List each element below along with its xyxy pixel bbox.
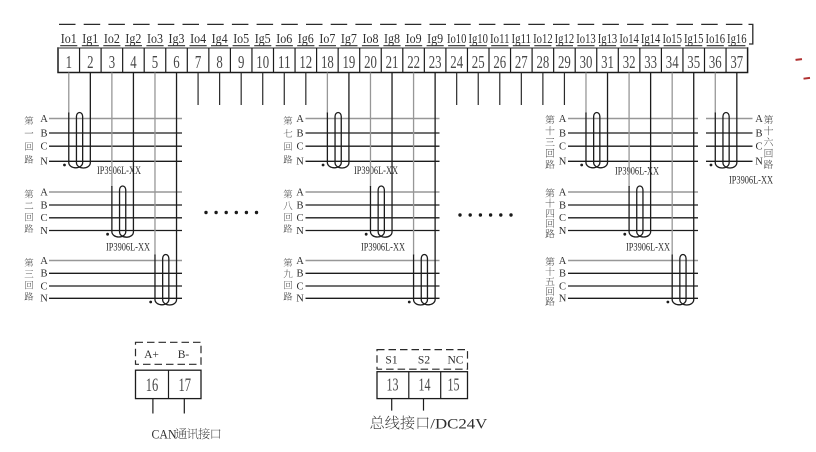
svg-text:34: 34 bbox=[666, 52, 679, 72]
svg-text:N: N bbox=[40, 294, 48, 305]
svg-text:Io3: Io3 bbox=[147, 31, 163, 46]
svg-text:A: A bbox=[40, 256, 48, 267]
svg-text:Ig13: Ig13 bbox=[598, 31, 618, 46]
svg-text:Ig15: Ig15 bbox=[684, 31, 704, 46]
svg-text:26: 26 bbox=[493, 52, 506, 72]
svg-text:Io15: Io15 bbox=[662, 31, 682, 46]
svg-text:Ig2: Ig2 bbox=[125, 31, 141, 46]
svg-text:Ig12: Ig12 bbox=[555, 31, 575, 46]
svg-text:31: 31 bbox=[601, 52, 614, 72]
svg-text:B: B bbox=[40, 269, 47, 280]
svg-text:B-: B- bbox=[178, 349, 190, 361]
svg-text:A: A bbox=[40, 114, 48, 125]
svg-text:1: 1 bbox=[66, 52, 72, 72]
svg-text:N: N bbox=[296, 157, 304, 168]
svg-text:Io13: Io13 bbox=[576, 31, 596, 46]
svg-text:A+: A+ bbox=[144, 349, 159, 361]
svg-text:Io9: Io9 bbox=[406, 31, 422, 46]
svg-text:IP3906L-XX: IP3906L-XX bbox=[615, 166, 659, 178]
svg-text:15: 15 bbox=[448, 375, 460, 395]
svg-text:A: A bbox=[296, 187, 304, 198]
svg-text:B: B bbox=[296, 128, 303, 139]
svg-text:Ig5: Ig5 bbox=[255, 31, 271, 46]
svg-text:IP3906L-XX: IP3906L-XX bbox=[106, 242, 150, 254]
svg-text:Io14: Io14 bbox=[619, 31, 639, 46]
svg-text:N: N bbox=[755, 157, 763, 168]
svg-text:18: 18 bbox=[321, 52, 334, 72]
svg-text:14: 14 bbox=[419, 375, 431, 395]
svg-text:Io7: Io7 bbox=[319, 31, 335, 46]
svg-text:Io6: Io6 bbox=[276, 31, 292, 46]
svg-text:21: 21 bbox=[386, 52, 399, 72]
svg-text:Io11: Io11 bbox=[490, 31, 510, 46]
svg-text:C: C bbox=[296, 213, 303, 224]
svg-text:27: 27 bbox=[515, 52, 528, 72]
svg-text:Io8: Io8 bbox=[363, 31, 379, 46]
svg-text:IP3906L-XX: IP3906L-XX bbox=[361, 242, 405, 254]
svg-text:8: 8 bbox=[216, 52, 223, 72]
svg-text:32: 32 bbox=[623, 52, 636, 72]
svg-text:10: 10 bbox=[256, 52, 269, 72]
svg-text:N: N bbox=[559, 294, 567, 305]
svg-text:C: C bbox=[296, 281, 303, 292]
svg-text:13: 13 bbox=[387, 375, 399, 395]
svg-text:Ig6: Ig6 bbox=[298, 31, 314, 46]
svg-text:C: C bbox=[40, 142, 47, 153]
svg-text:12: 12 bbox=[299, 52, 312, 72]
svg-text:B: B bbox=[559, 128, 566, 139]
svg-text:/DC24V: /DC24V bbox=[430, 416, 488, 432]
svg-text:A: A bbox=[559, 256, 567, 267]
svg-text:35: 35 bbox=[687, 52, 700, 72]
svg-text:30: 30 bbox=[580, 52, 593, 72]
svg-text:B: B bbox=[296, 269, 303, 280]
svg-text:Io4: Io4 bbox=[190, 31, 206, 46]
svg-text:CAN: CAN bbox=[152, 427, 178, 442]
svg-text:19: 19 bbox=[343, 52, 356, 72]
svg-text:B: B bbox=[559, 269, 566, 280]
svg-text:B: B bbox=[559, 200, 566, 211]
svg-text:11: 11 bbox=[278, 52, 291, 72]
svg-text:25: 25 bbox=[472, 52, 485, 72]
svg-text:23: 23 bbox=[429, 52, 442, 72]
svg-text:N: N bbox=[40, 226, 48, 237]
svg-text:20: 20 bbox=[364, 52, 377, 72]
svg-text:17: 17 bbox=[179, 375, 192, 396]
svg-text:B: B bbox=[40, 200, 47, 211]
svg-text:Ig16: Ig16 bbox=[727, 31, 747, 46]
svg-text:C: C bbox=[296, 142, 303, 153]
svg-text:Ig8: Ig8 bbox=[384, 31, 400, 46]
svg-text:Ig10: Ig10 bbox=[468, 31, 488, 46]
svg-text:B: B bbox=[755, 128, 762, 139]
svg-text:3: 3 bbox=[109, 52, 116, 72]
svg-text:C: C bbox=[40, 281, 47, 292]
svg-text:Io1: Io1 bbox=[61, 31, 77, 46]
svg-text:A: A bbox=[559, 114, 567, 125]
svg-text:A: A bbox=[755, 114, 763, 125]
svg-text:22: 22 bbox=[407, 52, 420, 72]
svg-text:IP3906L-XX: IP3906L-XX bbox=[626, 242, 670, 254]
svg-text:Ig1: Ig1 bbox=[82, 31, 98, 46]
svg-text:C: C bbox=[559, 281, 566, 292]
svg-text:A: A bbox=[559, 187, 567, 198]
svg-text:IP3906L-XX: IP3906L-XX bbox=[97, 165, 141, 177]
svg-text:4: 4 bbox=[130, 52, 137, 72]
svg-text:C: C bbox=[559, 142, 566, 153]
svg-text:IP3906L-XX: IP3906L-XX bbox=[729, 175, 773, 187]
svg-text:Io2: Io2 bbox=[104, 31, 120, 46]
svg-text:A: A bbox=[40, 187, 48, 198]
svg-text:28: 28 bbox=[537, 52, 550, 72]
svg-text:Io10: Io10 bbox=[447, 31, 467, 46]
svg-text:37: 37 bbox=[730, 52, 743, 72]
svg-text:7: 7 bbox=[195, 52, 202, 72]
svg-text:9: 9 bbox=[238, 52, 245, 72]
svg-text:Ig11: Ig11 bbox=[512, 31, 532, 46]
svg-text:B: B bbox=[296, 200, 303, 211]
svg-text:S1: S1 bbox=[385, 355, 397, 367]
svg-text:Ig14: Ig14 bbox=[641, 31, 661, 46]
svg-text:NC: NC bbox=[448, 355, 464, 367]
svg-text:Ig7: Ig7 bbox=[341, 31, 357, 46]
svg-text:36: 36 bbox=[709, 52, 722, 72]
svg-text:Io12: Io12 bbox=[533, 31, 553, 46]
svg-text:2: 2 bbox=[87, 52, 93, 72]
svg-text:N: N bbox=[40, 157, 48, 168]
svg-text:Ig9: Ig9 bbox=[427, 31, 443, 46]
svg-text:Ig4: Ig4 bbox=[212, 31, 228, 46]
svg-text:A: A bbox=[296, 256, 304, 267]
svg-text:24: 24 bbox=[450, 52, 463, 72]
svg-text:Io16: Io16 bbox=[706, 31, 726, 46]
svg-text:16: 16 bbox=[146, 375, 159, 396]
svg-text:A: A bbox=[296, 114, 304, 125]
svg-text:C: C bbox=[40, 213, 47, 224]
svg-text:N: N bbox=[296, 226, 304, 237]
svg-text:N: N bbox=[296, 294, 304, 305]
svg-text:29: 29 bbox=[558, 52, 571, 72]
svg-text:Ig3: Ig3 bbox=[169, 31, 185, 46]
svg-text:6: 6 bbox=[173, 52, 180, 72]
svg-text:Io5: Io5 bbox=[233, 31, 249, 46]
svg-text:B: B bbox=[40, 128, 47, 139]
svg-text:C: C bbox=[755, 142, 762, 153]
svg-text:N: N bbox=[559, 226, 567, 237]
svg-text:S2: S2 bbox=[418, 355, 430, 367]
svg-text:33: 33 bbox=[644, 52, 657, 72]
svg-text:5: 5 bbox=[152, 52, 159, 72]
svg-text:C: C bbox=[559, 213, 566, 224]
svg-text:N: N bbox=[559, 157, 567, 168]
